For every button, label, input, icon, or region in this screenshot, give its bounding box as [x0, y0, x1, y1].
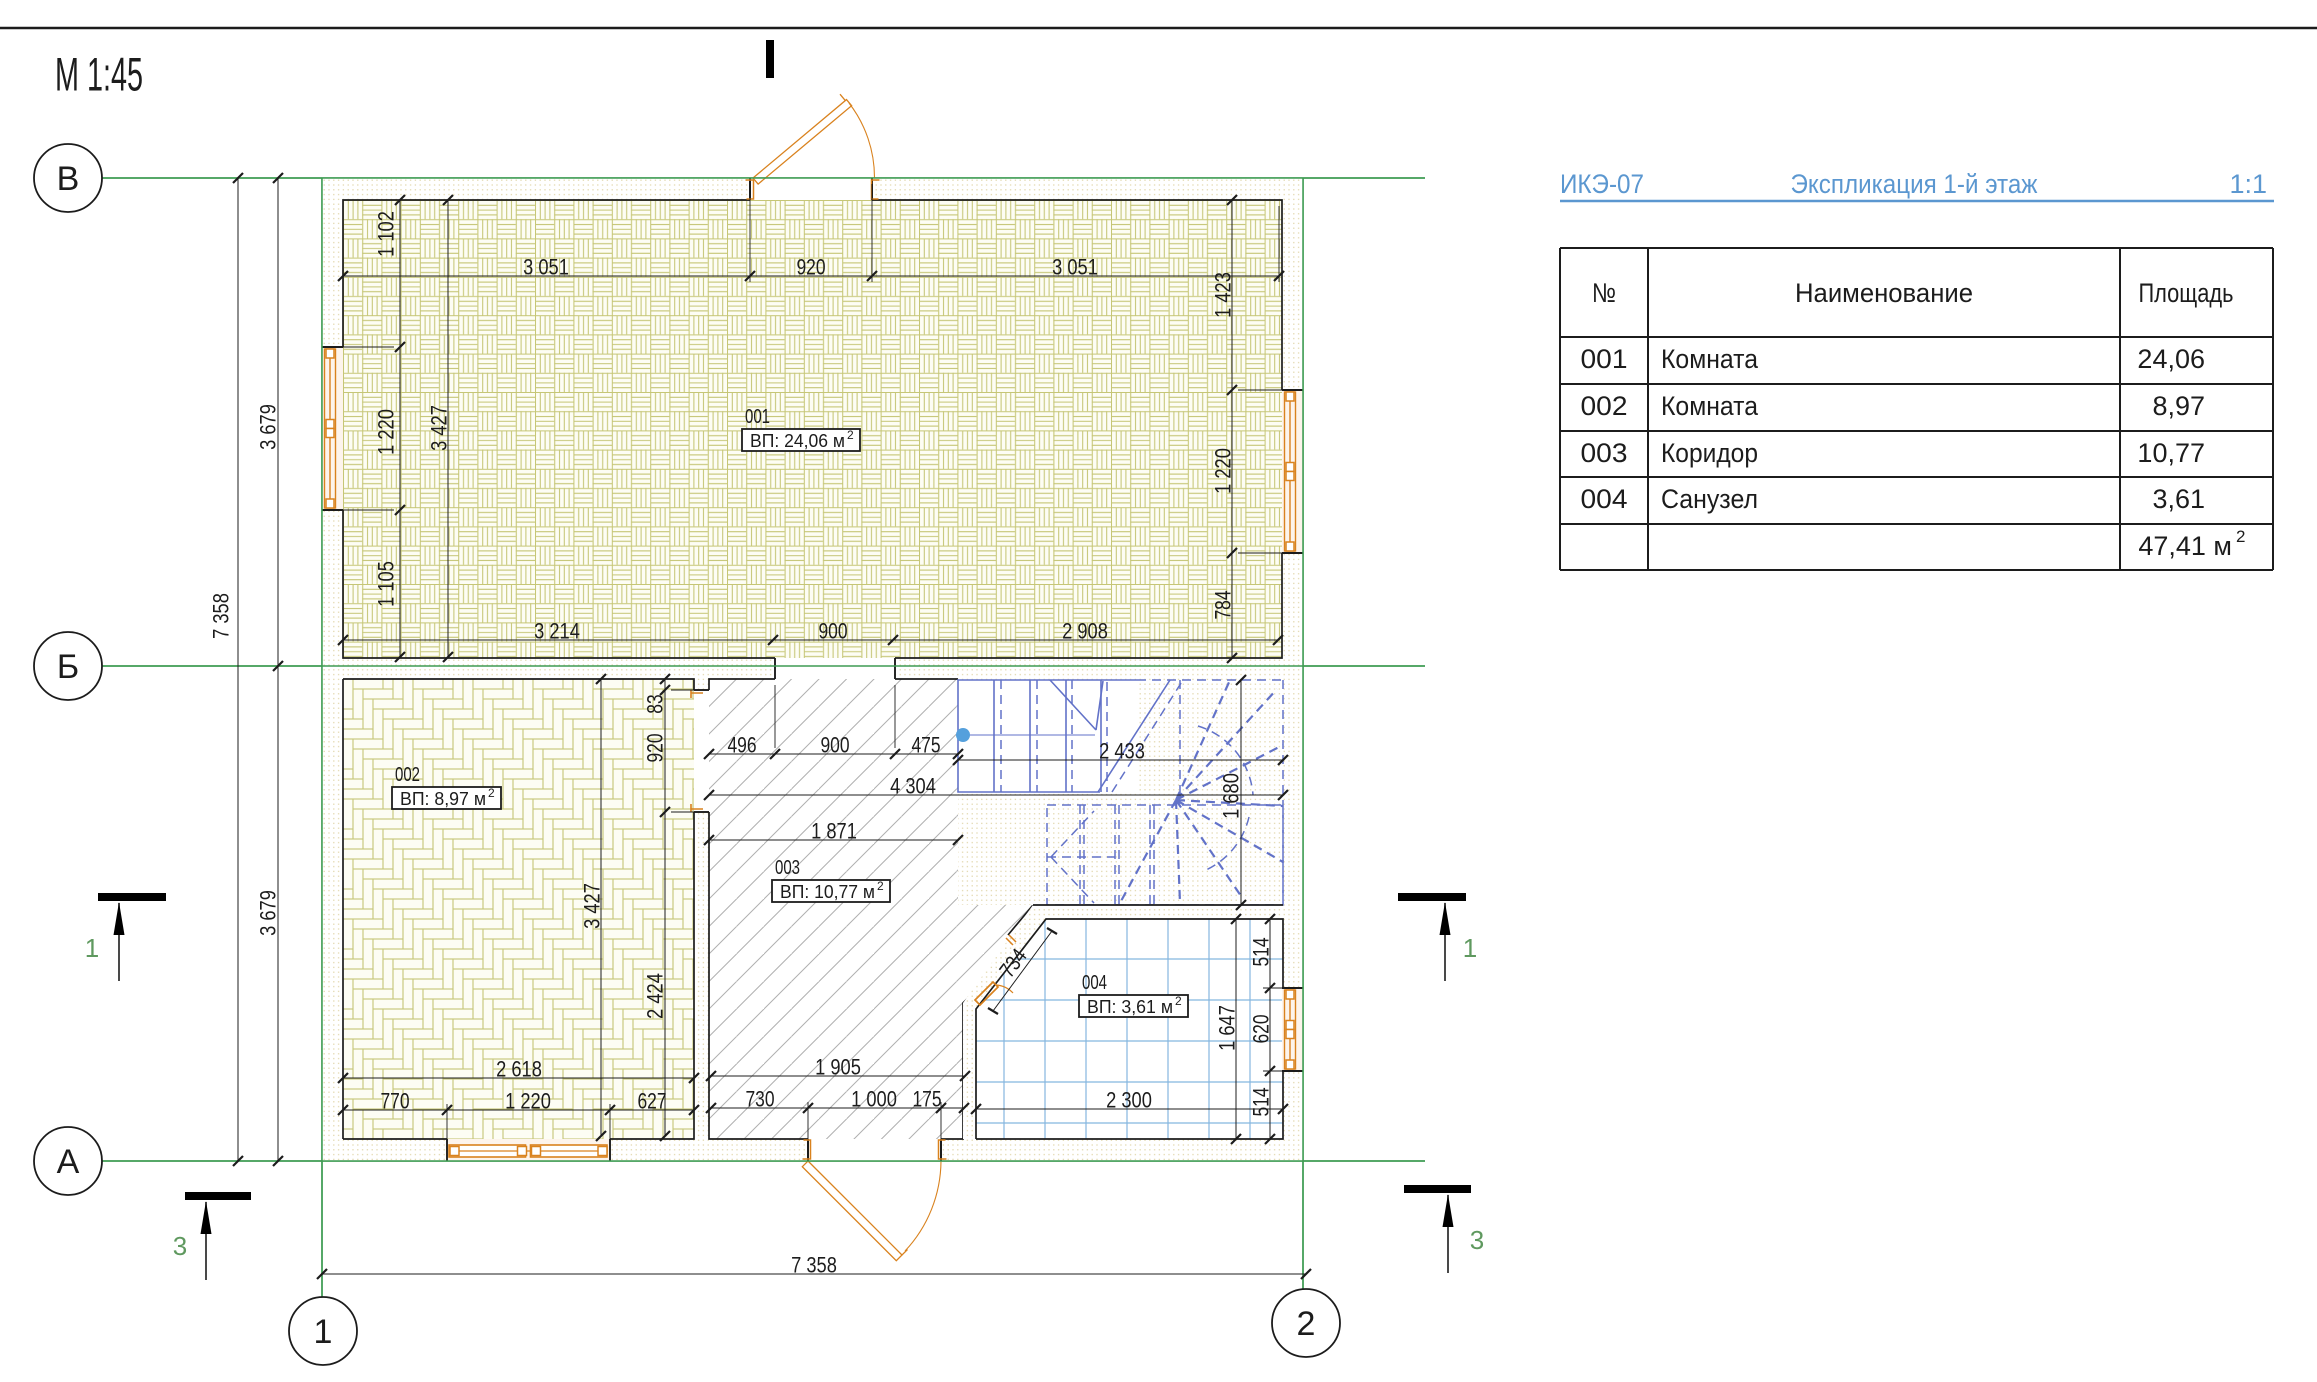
svg-text:003: 003 — [1581, 438, 1628, 468]
svg-text:1 680: 1 680 — [1219, 773, 1244, 819]
svg-text:ВП: 24,06 м: ВП: 24,06 м — [750, 431, 845, 451]
svg-text:Б: Б — [57, 648, 79, 686]
svg-text:1 000: 1 000 — [851, 1087, 897, 1112]
svg-text:ВП: 3,61 м: ВП: 3,61 м — [1087, 997, 1173, 1017]
svg-text:3,61: 3,61 — [2152, 484, 2205, 514]
svg-text:1: 1 — [85, 933, 99, 963]
svg-text:Наименование: Наименование — [1795, 278, 1973, 308]
svg-text:900: 900 — [820, 733, 849, 758]
svg-text:001: 001 — [1581, 344, 1628, 374]
svg-text:8,97: 8,97 — [2152, 391, 2205, 421]
svg-text:Коридор: Коридор — [1661, 438, 1758, 468]
svg-text:3: 3 — [1470, 1225, 1484, 1255]
svg-text:1 220: 1 220 — [505, 1089, 551, 1114]
svg-text:1: 1 — [314, 1313, 333, 1351]
svg-text:А: А — [57, 1143, 80, 1181]
svg-text:1 871: 1 871 — [811, 819, 857, 844]
svg-text:3 427: 3 427 — [580, 883, 605, 929]
svg-text:1: 1 — [1463, 933, 1477, 963]
svg-text:2: 2 — [1297, 1305, 1316, 1343]
svg-text:002: 002 — [1581, 391, 1628, 421]
svg-text:3 051: 3 051 — [1052, 255, 1098, 280]
svg-text:770: 770 — [380, 1089, 409, 1114]
svg-text:920: 920 — [643, 733, 668, 762]
svg-text:475: 475 — [911, 733, 940, 758]
svg-text:83: 83 — [643, 694, 668, 713]
svg-text:784: 784 — [1211, 590, 1236, 619]
svg-text:Санузел: Санузел — [1661, 484, 1758, 514]
svg-text:2 300: 2 300 — [1106, 1088, 1152, 1113]
svg-text:1 105: 1 105 — [374, 561, 399, 607]
svg-text:ИКЭ-07: ИКЭ-07 — [1560, 169, 1644, 199]
svg-text:1 220: 1 220 — [374, 409, 399, 455]
svg-text:3 214: 3 214 — [534, 619, 580, 644]
svg-text:1 102: 1 102 — [374, 211, 399, 257]
svg-text:2 908: 2 908 — [1062, 619, 1108, 644]
svg-text:001: 001 — [745, 406, 770, 428]
svg-text:003: 003 — [775, 857, 800, 879]
svg-text:ВП: 8,97 м: ВП: 8,97 м — [400, 789, 486, 809]
svg-text:Площадь: Площадь — [2139, 278, 2234, 308]
svg-text:514: 514 — [1249, 1087, 1274, 1116]
svg-text:496: 496 — [727, 733, 756, 758]
svg-text:514: 514 — [1249, 937, 1274, 966]
svg-text:2 424: 2 424 — [643, 973, 668, 1019]
svg-text:24,06: 24,06 — [2137, 344, 2205, 374]
svg-text:Экспликация 1-й этаж: Экспликация 1-й этаж — [1791, 169, 2038, 199]
svg-text:2 433: 2 433 — [1099, 739, 1145, 764]
svg-text:7 358: 7 358 — [209, 593, 234, 639]
svg-text:Комната: Комната — [1661, 344, 1759, 374]
svg-text:М 1:45: М 1:45 — [55, 48, 143, 101]
svg-text:2: 2 — [1175, 994, 1182, 1008]
svg-text:Комната: Комната — [1661, 391, 1759, 421]
svg-text:730: 730 — [745, 1087, 774, 1112]
svg-text:175: 175 — [912, 1087, 941, 1112]
svg-text:1 423: 1 423 — [1211, 272, 1236, 318]
svg-text:В: В — [57, 160, 80, 198]
svg-text:7 358: 7 358 — [791, 1253, 837, 1278]
svg-text:002: 002 — [395, 764, 420, 786]
svg-text:920: 920 — [796, 255, 825, 280]
svg-text:10,77: 10,77 — [2137, 438, 2205, 468]
svg-text:1 647: 1 647 — [1215, 1005, 1240, 1051]
svg-text:627: 627 — [637, 1089, 666, 1114]
svg-text:3: 3 — [173, 1231, 187, 1261]
svg-text:004: 004 — [1581, 484, 1628, 514]
svg-text:1 220: 1 220 — [1211, 448, 1236, 494]
svg-text:1:1: 1:1 — [2229, 169, 2267, 199]
svg-text:900: 900 — [818, 619, 847, 644]
svg-text:47,41 м: 47,41 м — [2138, 531, 2232, 561]
svg-text:2: 2 — [877, 879, 884, 893]
svg-text:3 427: 3 427 — [427, 405, 452, 451]
svg-text:2: 2 — [2236, 527, 2245, 546]
svg-text:3 051: 3 051 — [523, 255, 569, 280]
svg-text:2 618: 2 618 — [496, 1057, 542, 1082]
svg-text:№: № — [1592, 278, 1616, 308]
svg-text:ВП: 10,77 м: ВП: 10,77 м — [780, 882, 875, 902]
svg-text:2: 2 — [488, 786, 495, 800]
svg-text:4 304: 4 304 — [890, 774, 936, 799]
svg-text:3 679: 3 679 — [256, 404, 281, 450]
svg-text:1 905: 1 905 — [815, 1055, 861, 1080]
svg-text:620: 620 — [1249, 1014, 1274, 1043]
svg-text:2: 2 — [847, 428, 854, 442]
svg-text:004: 004 — [1082, 972, 1107, 994]
svg-text:3 679: 3 679 — [256, 890, 281, 936]
